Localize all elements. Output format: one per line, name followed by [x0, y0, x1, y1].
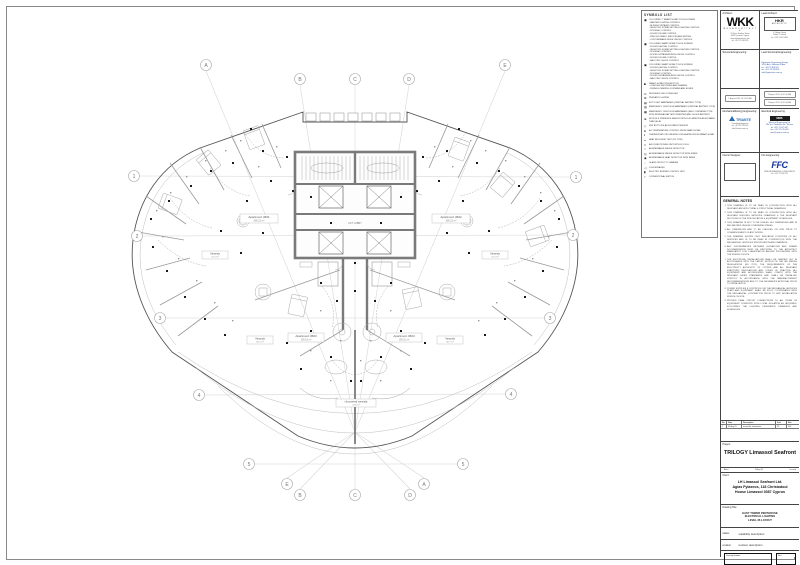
mechanical-label: Mechanical/Energy Engineering:	[723, 110, 758, 113]
legend-item-label: EMERGENCY LIGHT NON MAINTAINED (CENTRAL …	[649, 106, 715, 109]
electrical-address: Electrical Engineering Ltd 26a Vas. Frei…	[762, 122, 798, 134]
floor-plan-svg: A B C D E 1 2 3 4 5 1 2 3 4 5 E B C D A	[0, 0, 640, 565]
stamp-left: 1 August 2021 10:37:45 AM	[725, 95, 756, 102]
legend-item: ⌐ CONVENTIONAL SWITCH	[644, 176, 715, 179]
apartment-label: Apartment 3602	[440, 215, 462, 219]
grid-bubble-label: D	[408, 493, 412, 499]
lobby-label: LIFT LOBBY	[348, 222, 362, 225]
apartment-area: 190.10 m²	[301, 339, 312, 342]
grid-bubble-label: 3	[159, 316, 162, 322]
legend-item-label: THERMOSTAT FOR UNDERFLOOR HEATING FROM S…	[649, 134, 714, 137]
architect-cell: Architect: WKK W K K A R C H I T E C T S…	[721, 11, 760, 49]
legend-item-label: GLASS CIRCUIT TO CAMERA	[649, 162, 678, 165]
general-note: ALL DIMENSIONS ARE TO BE CHECKED ON SITE…	[727, 229, 797, 235]
legend-item-label: A/C TEMPERATURE CONTROL FROM SMART HOME	[649, 130, 701, 133]
legend-item-label: PENDANT LIGHTING	[649, 97, 669, 100]
general-note: THIS DRAWING IS NOT TO BE SCALED. ALL DI…	[727, 222, 797, 228]
general-note: ANY DISCREPANCIES BETWEEN ELEVATIONS AND…	[727, 246, 797, 257]
rev-desc: Issued for information	[742, 425, 776, 428]
title-block: Architect: WKK W K K A R C H I T E C T S…	[720, 10, 798, 557]
fire-cell: Fire Engineering: FFC FIRE ENGINEERING C…	[760, 153, 799, 196]
client-line-3: House Limassol 3087 Cyprus	[721, 490, 799, 495]
drawing-number-box: Drawing Number:	[724, 553, 772, 565]
general-note: THE DRAWING SHOWS ONLY INDICATIVE POSITI…	[727, 236, 797, 244]
symbols-list: SYMBOLS LIST ▣ COLOURED 7" SMART HOME TO…	[641, 10, 718, 238]
revision-table-row: No. Date Description Suit. Rev. 1 01 Aug…	[721, 421, 799, 442]
legend-item: ◉ ADDRESSABLE HEAT DETECTOR WITH SIREN	[644, 157, 715, 160]
apartment-label: Apartment 3603	[295, 334, 317, 338]
hkr-logo-sub: ARCHITECTS	[765, 23, 795, 25]
legend-item-label: LOUDSPEAKER	[649, 167, 665, 170]
legend-item-label: EXIT LIGHT MAINTAINED (CENTRAL BATTERY T…	[649, 102, 701, 105]
legend-item-label: ADDRESSABLE HEAT DETECTOR WITH SIREN	[649, 157, 695, 160]
legend-item: ▮ ELECTRIC BURNER CONTROL UNIT	[644, 171, 715, 174]
rev-h-suit: Suit.	[776, 421, 787, 424]
veranda-label: Veranda	[210, 251, 220, 255]
interior-logo-box	[724, 163, 756, 181]
legend-item-label: COLOURED SMART HOME TOUCH SCREEN - ROOM …	[649, 43, 700, 63]
client-label: Client:	[721, 473, 799, 478]
project-date: 1 Aug 21	[755, 469, 764, 471]
legend-item: ⊕ MOTION & PRESENCE SENSOR WITH 0-30 MIN…	[644, 118, 715, 124]
revision-value: revision description	[739, 543, 763, 547]
grid-bubble-label: 5	[248, 462, 251, 468]
rev-date: 01 Aug 21	[727, 425, 742, 428]
wkk-logo-sub: W K K A R C H I T E C T S	[723, 28, 758, 32]
veranda-label: Veranda	[255, 336, 265, 340]
project-row: Project: TRILOGY Limassol Seafront Auto …	[721, 442, 799, 473]
rev-box: Rev:	[776, 553, 796, 565]
general-notes-list: THIS DRAWING IS TO BE READ IN CONJUNCTIO…	[721, 205, 797, 311]
stamp-left-cell: 1 August 2021 10:37:45 AM	[721, 89, 760, 108]
legend-item-label: CONVENTIONAL SWITCH	[649, 176, 674, 179]
legend-item: □ AIR CONDITIONING UNIT WITH FCU FILL	[644, 144, 715, 147]
status-label: status:	[723, 532, 739, 535]
legend-item: ◁ LOUDSPEAKER	[644, 167, 715, 170]
grid-bubble-label: 3	[549, 316, 552, 322]
mech-elec-row: Mechanical/Energy Engineering: TRIANTE C…	[721, 109, 799, 153]
uncovered-veranda-label: Uncovered veranda	[345, 399, 368, 403]
project-meta-row: Auto 1 Aug 21 Issued	[721, 467, 799, 472]
electrical-label: Electrical Engineering:	[762, 110, 798, 113]
lead-structural-label: Lead Structural Engineering:	[762, 51, 798, 54]
legend-item: ◐ THERMOSTAT FOR UNDERFLOOR HEATING FROM…	[644, 134, 715, 137]
architect-address: 14 Zinas Kanther Street 3035 Limassol, C…	[723, 33, 758, 42]
legend-item: ▦ EMERGENCY LIGHT NON MAINTAINED (SELF C…	[644, 111, 715, 117]
apartment-area: 286.15 m²	[254, 220, 265, 223]
legend-item: ◇ KNX BUTTON & ADJUSTMENT SENSOR	[644, 125, 715, 128]
drawing-title-label: Drawing Title:	[721, 505, 799, 510]
legend-item: ▣ COLOURED SMART HOME TOUCH SCREEN - ROO…	[644, 64, 715, 81]
interior-cell: Interior Designer:	[721, 153, 760, 196]
triante-logo-text: TRIANTE	[736, 118, 751, 122]
veranda-area: 41.5 m²	[491, 256, 499, 259]
status-value: suitability description	[739, 532, 765, 536]
grid-bubble-label: 4	[510, 392, 513, 398]
general-notes-row: GENERAL NOTES THIS DRAWING IS TO BE READ…	[721, 197, 799, 421]
lead-architect-cell: Lead Architect: HKR ARCHITECTS 5 College…	[760, 11, 799, 49]
balcony-divisions	[306, 113, 400, 121]
stamp-right-cell: 1 August 2021 10:37:45 AM 1 August 2021 …	[760, 89, 799, 108]
legend-item: ▥ EMERGENCY LIGHT NON MAINTAINED (CENTRA…	[644, 106, 715, 109]
wkk-logo: WKK	[723, 16, 758, 28]
project-issued: Issued	[790, 469, 796, 471]
revision-row: revision: revision description	[721, 540, 799, 551]
structural-cell: Structural Engineering:	[721, 50, 760, 88]
number-row: Drawing Number: Rev:	[721, 551, 799, 565]
lead-architect-label: Lead Architect:	[762, 12, 798, 15]
grid-bubble-label: 2	[136, 234, 139, 240]
legend-item-label: ADDRESSABLE SMOKE DETECTOR WITH SIREN	[649, 153, 697, 156]
legend-item-label: COLOURED 7" SMART HOME TOUCH SCREEN - MA…	[649, 19, 700, 41]
rev-suit: S2	[776, 425, 787, 428]
legend-item: ⊗ PENDANT LIGHTING	[644, 97, 715, 100]
legend-item-label: ADDRESSABLE SMOKE DETECTOR	[649, 148, 684, 151]
apartment-area: 286.15 m²	[446, 220, 457, 223]
legend-item: ⊙ RECESSED LED DOWNLIGHT	[644, 93, 715, 96]
legend-item-label: EMERGENCY LIGHT NON MAINTAINED (SELF CON…	[649, 111, 715, 117]
symbols-list-items: ▣ COLOURED 7" SMART HOME TOUCH SCREEN - …	[644, 19, 715, 179]
legend-item: ● A/C TEMPERATURE CONTROL FROM SMART HOM…	[644, 130, 715, 133]
stamp-right-2: 1 August 2021 10:37:46 AM	[764, 99, 796, 106]
veranda-area: 41.5 m²	[211, 256, 219, 259]
project-scale: Auto	[724, 469, 729, 471]
stamps-row: 1 August 2021 10:37:45 AM 1 August 2021 …	[721, 89, 799, 109]
general-notes-title: GENERAL NOTES	[723, 199, 799, 203]
structural-row: Structural Engineering: Lead Structural …	[721, 50, 799, 89]
revision-label: revision:	[723, 544, 739, 547]
general-note: PROVIDE FINAL CIRCUIT CONNECTIONS TO ALL…	[727, 300, 797, 311]
legend-item-label: MOTION & PRESENCE SENSOR WITH 0-30 MINUT…	[649, 118, 715, 124]
interior-fire-row: Interior Designer: Fire Engineering: FFC…	[721, 153, 799, 197]
legend-item-label: ELECTRIC BURNER CONTROL UNIT	[649, 171, 685, 174]
drawing-title-line-3: LEVEL 36 LAYOUT	[721, 519, 799, 523]
lead-architect-address: 5 College Green Dublin 2, Ireland tel: +…	[762, 32, 798, 39]
legend-item-label: KNX BUTTON & ADJUSTMENT SENSOR	[649, 125, 688, 128]
status-row: status: suitability description	[721, 528, 799, 540]
drawing-number-label: Drawing Number:	[726, 555, 741, 557]
veranda-area: 40.7 m²	[256, 341, 264, 344]
ffc-logo: FFC	[762, 160, 798, 170]
triante-logo: TRIANTE	[723, 116, 758, 122]
rev-box-label: Rev:	[778, 555, 782, 557]
legend-item: ○ ADDRESSABLE SMOKE DETECTOR	[644, 148, 715, 151]
general-note: THE ELECTRICAL INSTALLATIONS SHALL BE CA…	[727, 259, 797, 287]
electrical-logo: MMS	[770, 116, 790, 121]
client-row: Client: LH Limassol Seafront Ltd. Agias …	[721, 473, 799, 505]
project-label: Project:	[721, 442, 799, 447]
legend-item: ◎ ADDRESSABLE SMOKE DETECTOR WITH SIREN	[644, 153, 715, 156]
architect-row: Architect: WKK W K K A R C H I T E C T S…	[721, 11, 799, 50]
legend-item: ◒ HEAT RECOVERY UNIT (VS TYPE)	[644, 139, 715, 142]
legend-item: ▤ EXIT LIGHT MAINTAINED (CENTRAL BATTERY…	[644, 102, 715, 105]
legend-item: ▣ COLOURED 7" SMART HOME TOUCH SCREEN - …	[644, 19, 715, 41]
fire-address: FIRE ENGINEERING CONSULTANTS tel: +357 2…	[762, 171, 798, 176]
drawing-sheet: A B C D E 1 2 3 4 5 1 2 3 4 5 E B C D A	[0, 0, 800, 565]
floor-plan: A B C D E 1 2 3 4 5 1 2 3 4 5 E B C D A	[0, 0, 640, 565]
grid-bubble-label: 1	[133, 174, 136, 180]
grid-bubble-label: C	[353, 493, 357, 499]
uncovered-veranda-area: 4.50 m²	[352, 404, 360, 407]
rev-h-rev: Rev.	[787, 421, 799, 424]
drawing-title-row: Drawing Title: EAST TOWER PENTHOUSE ELEC…	[721, 505, 799, 528]
legend-item: ◌ GLASS CIRCUIT TO CAMERA	[644, 162, 715, 165]
apartment-label: Apartment 3604	[393, 334, 415, 338]
general-note: THIS DRAWING IS TO BE READ IN CONJUNCTIO…	[727, 212, 797, 220]
grid-bubble-label: 4	[198, 393, 201, 399]
structural-label: Structural Engineering:	[723, 51, 758, 54]
general-note: THIS DRAWING IS TO BE READ IN CONJUNCTIO…	[727, 205, 797, 211]
grid-bubble-label: 1	[575, 175, 578, 181]
rev-rev: P01	[787, 425, 799, 428]
veranda-area: 40.7 m²	[446, 341, 454, 344]
veranda-label: Veranda	[490, 251, 500, 255]
mechanical-address: Consulting Engineers tel: +357 22 518 00…	[723, 123, 758, 130]
lead-structural-address: Hyperstatic Engineering Design 14-16 Arc…	[762, 62, 798, 74]
legend-item-label: HEAT RECOVERY UNIT (VS TYPE)	[649, 139, 683, 142]
grid-bubble-label: 5	[462, 462, 465, 468]
lead-structural-cell: Lead Structural Engineering: Hyperstatic…	[760, 50, 799, 88]
grid-bubble-label: D	[407, 77, 411, 83]
project-name: TRILOGY Limassol Seafront	[721, 450, 799, 456]
lead-architect-logo: HKR ARCHITECTS	[764, 17, 796, 31]
symbols-list-title: SYMBOLS LIST	[644, 13, 715, 17]
interior-label: Interior Designer:	[723, 154, 758, 157]
rev-h-date: Date	[727, 421, 742, 424]
legend-item-label: COLOURED SMART HOME TOUCH SCREEN - ROOM …	[649, 64, 700, 81]
stamp-right-1: 1 August 2021 10:37:45 AM	[764, 91, 796, 98]
legend-item: ■ SMART HOME PUSH BUTTON - LIGHTING SWIT…	[644, 83, 715, 91]
grid-bubble-label: 2	[572, 233, 575, 239]
rev-h-desc: Description	[742, 421, 776, 424]
grid-bubble-label: C	[353, 77, 357, 83]
mechanical-cell: Mechanical/Energy Engineering: TRIANTE C…	[721, 109, 760, 152]
legend-item-label: SMART HOME PUSH BUTTON - LIGHTING SWITCH…	[649, 83, 693, 91]
legend-item-label: AIR CONDITIONING UNIT WITH FCU FILL	[649, 144, 689, 147]
apartment-label: Apartment 3601	[248, 215, 270, 219]
legend-item: ▣ COLOURED SMART HOME TOUCH SCREEN - ROO…	[644, 43, 715, 63]
apartment-area: 190.10 m²	[399, 339, 410, 342]
veranda-label: Veranda	[445, 336, 455, 340]
legend-item-label: RECESSED LED DOWNLIGHT	[649, 93, 678, 96]
electrical-cell: Electrical Engineering: MMS Electrical E…	[760, 109, 799, 152]
general-note: POWER SUPPLIES & CONTROLS FOR THE MECHAN…	[727, 288, 797, 299]
fire-label: Fire Engineering:	[762, 154, 798, 157]
revision-table-entry: 1 01 Aug 21 Issued for information S2 P0…	[721, 425, 799, 429]
